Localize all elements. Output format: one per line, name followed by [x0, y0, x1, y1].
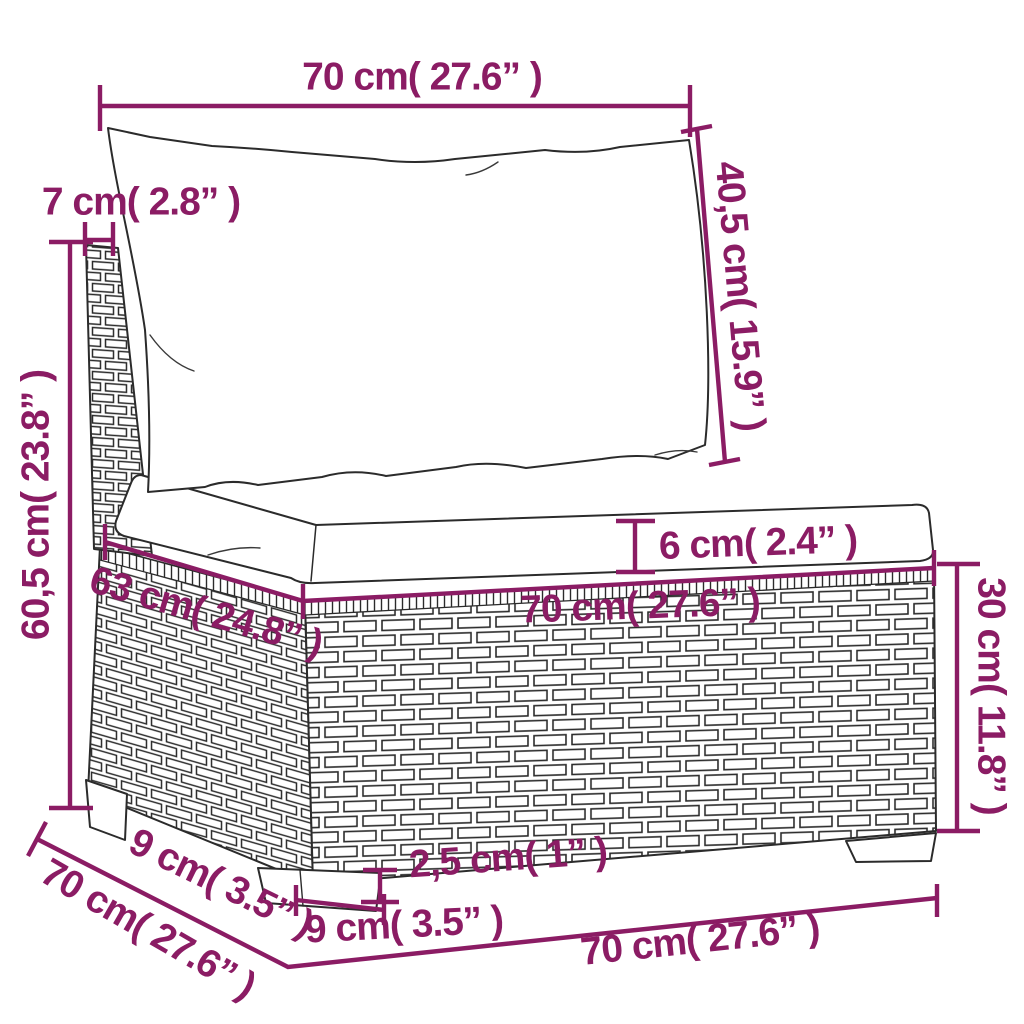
dim-label-seat-front-width: 70 cm( 27.6” ): [520, 582, 761, 629]
dim-label-post-width: 7 cm( 2.8” ): [42, 183, 240, 222]
dim-label-leg-front-width: 9 cm( 3.5” ): [304, 900, 504, 949]
dimension-diagram: 70 cm( 27.6” ) 7 cm( 2.8” ) 40,5 cm( 15.…: [0, 0, 1024, 1024]
dim-label-overall-height: 60,5 cm( 23.8” ): [17, 370, 56, 640]
dim-label-base-height: 30 cm( 11.8” ): [972, 577, 1011, 814]
dim-label-seat-cushion-thickness: 6 cm( 2.4” ): [658, 520, 858, 566]
dim-label-back-width-top: 70 cm( 27.6” ): [302, 58, 542, 97]
